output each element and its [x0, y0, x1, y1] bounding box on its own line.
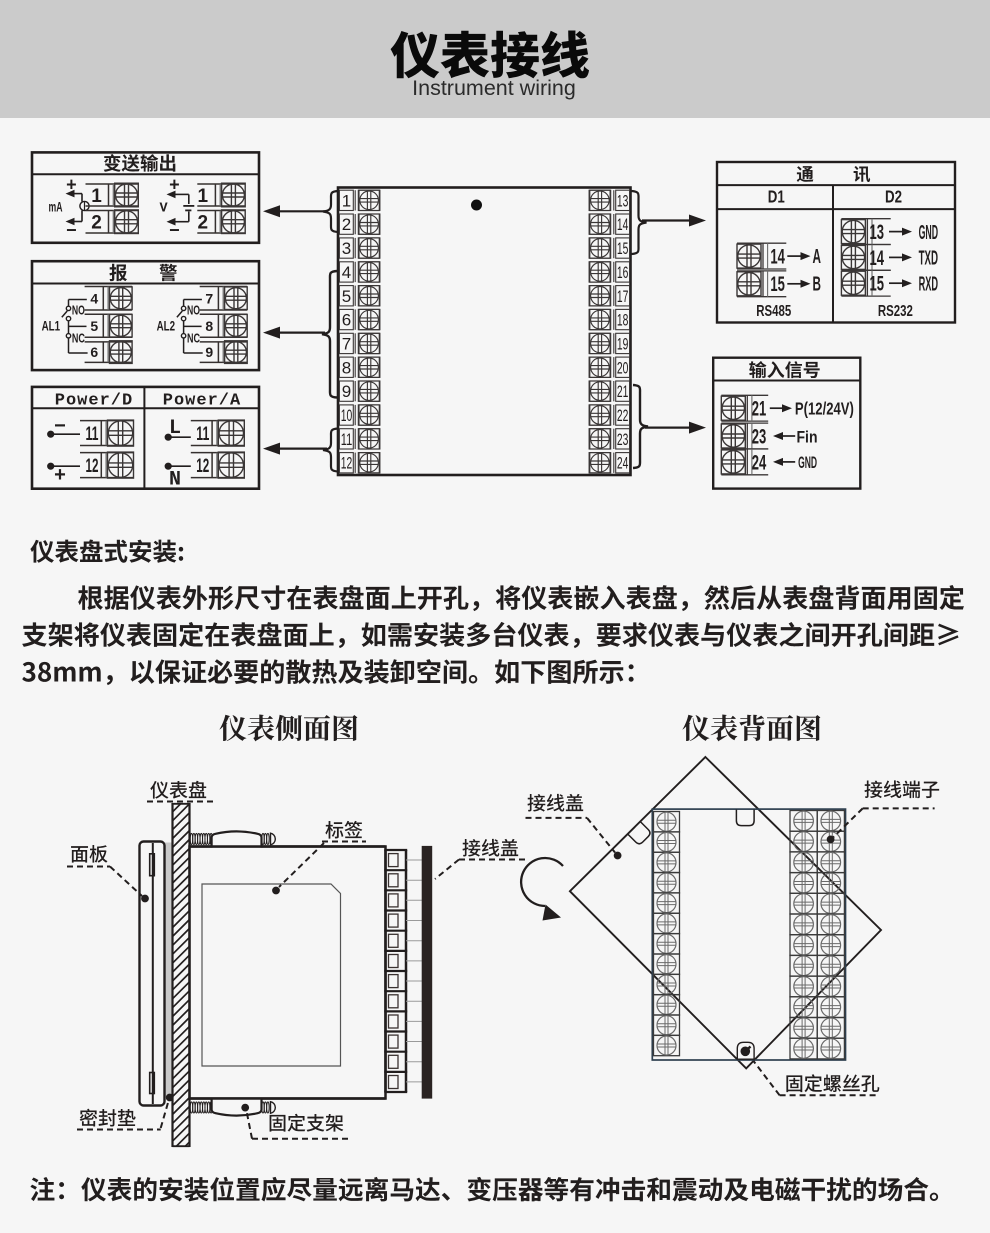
svg-text:7: 7 [342, 334, 351, 353]
svg-text:RS232: RS232 [878, 303, 913, 320]
svg-text:V: V [160, 202, 169, 217]
svg-text:13: 13 [617, 191, 629, 210]
svg-text:11: 11 [86, 424, 99, 445]
svg-text:4: 4 [90, 290, 98, 306]
svg-text:12: 12 [196, 456, 209, 477]
svg-text:1: 1 [342, 191, 351, 210]
svg-text:5: 5 [342, 287, 351, 306]
svg-text:17: 17 [617, 287, 629, 306]
svg-text:D2: D2 [885, 187, 902, 207]
svg-text:23: 23 [752, 425, 767, 448]
svg-text:9: 9 [205, 344, 213, 360]
svg-text:15: 15 [870, 273, 885, 296]
svg-text:3: 3 [342, 239, 351, 258]
svg-text:11: 11 [196, 424, 209, 445]
svg-text:mA: mA [49, 199, 63, 215]
svg-text:24: 24 [752, 451, 767, 474]
svg-text:2: 2 [198, 213, 209, 234]
svg-text:14: 14 [870, 247, 885, 270]
svg-text:6: 6 [90, 344, 98, 360]
svg-text:1: 1 [198, 186, 209, 207]
svg-text:12: 12 [341, 454, 353, 473]
svg-text:7: 7 [205, 290, 213, 306]
svg-text:14: 14 [617, 215, 629, 234]
svg-text:RS485: RS485 [756, 303, 791, 320]
svg-text:P(12/24V): P(12/24V) [795, 399, 854, 419]
svg-text:NC: NC [72, 330, 85, 345]
svg-text:NC: NC [187, 330, 200, 345]
svg-text:Power/A: Power/A [163, 392, 241, 411]
svg-text:TXD: TXD [919, 248, 939, 270]
svg-text:23: 23 [617, 430, 629, 449]
svg-text:−: − [66, 222, 77, 242]
svg-text:Power/D: Power/D [55, 392, 133, 411]
svg-text:24: 24 [617, 454, 629, 473]
svg-text:AL1: AL1 [42, 318, 61, 334]
svg-text:D1: D1 [768, 187, 785, 207]
svg-text:Fin: Fin [797, 427, 818, 446]
svg-text:22: 22 [617, 406, 629, 425]
svg-text:GND: GND [919, 222, 939, 244]
svg-text:4: 4 [342, 263, 351, 282]
svg-text:−: − [54, 416, 66, 439]
svg-text:15: 15 [617, 239, 629, 258]
svg-text:+: + [54, 465, 66, 488]
svg-text:AL2: AL2 [157, 318, 176, 334]
svg-text:8: 8 [205, 318, 213, 334]
svg-text:A: A [813, 246, 822, 268]
svg-text:Instrument wiring: Instrument wiring [412, 76, 576, 100]
svg-text:1: 1 [91, 186, 102, 207]
svg-text:11: 11 [341, 430, 353, 449]
svg-text:12: 12 [86, 456, 99, 477]
svg-text:8: 8 [342, 358, 351, 377]
svg-text:10: 10 [341, 406, 353, 425]
svg-text:21: 21 [752, 398, 767, 421]
svg-text:14: 14 [770, 246, 785, 269]
svg-text:20: 20 [617, 358, 629, 377]
svg-text:15: 15 [770, 273, 785, 296]
svg-text:9: 9 [342, 382, 351, 401]
svg-text:B: B [813, 274, 822, 296]
svg-text:21: 21 [617, 382, 629, 401]
svg-text:5: 5 [90, 318, 98, 334]
svg-text:GND: GND [798, 453, 817, 472]
svg-text:NO: NO [187, 303, 200, 318]
svg-text:6: 6 [342, 311, 351, 330]
svg-text:18: 18 [617, 311, 629, 330]
svg-text:2: 2 [342, 215, 351, 234]
svg-text:N: N [169, 469, 181, 492]
svg-text:RXD: RXD [919, 273, 939, 295]
svg-text:19: 19 [617, 334, 629, 353]
svg-text:NO: NO [72, 303, 85, 318]
svg-text:2: 2 [91, 213, 102, 234]
svg-text:13: 13 [870, 221, 885, 244]
svg-text:16: 16 [617, 263, 629, 282]
